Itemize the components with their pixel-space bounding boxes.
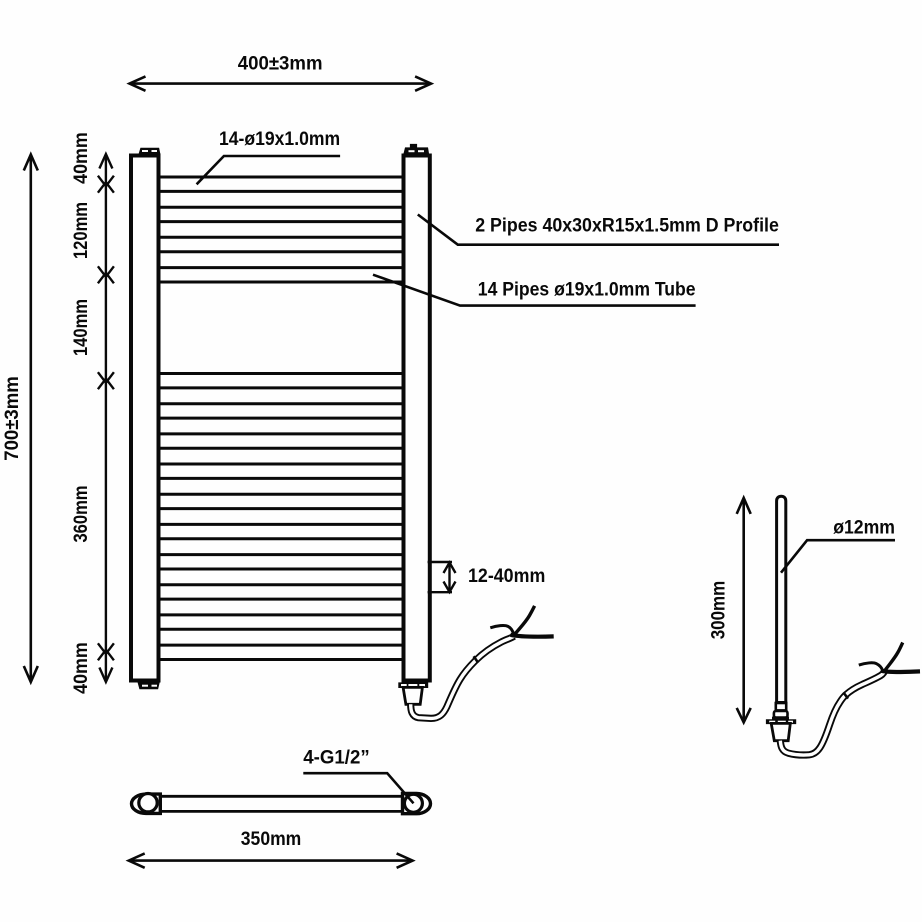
svg-text:120mm: 120mm — [70, 202, 92, 259]
svg-text:360mm: 360mm — [70, 485, 92, 542]
svg-text:2 Pipes 40x30xR15x1.5mm D Prof: 2 Pipes 40x30xR15x1.5mm D Profile — [475, 215, 779, 237]
svg-text:14 Pipes ø19x1.0mm Tube: 14 Pipes ø19x1.0mm Tube — [478, 279, 696, 301]
svg-text:40mm: 40mm — [70, 642, 92, 694]
svg-text:300mm: 300mm — [708, 581, 730, 640]
svg-text:40mm: 40mm — [70, 132, 92, 184]
svg-text:14-ø19x1.0mm: 14-ø19x1.0mm — [219, 128, 340, 150]
svg-text:4-G1/2”: 4-G1/2” — [303, 746, 369, 768]
svg-text:350mm: 350mm — [241, 828, 301, 850]
svg-text:ø12mm: ø12mm — [833, 517, 895, 539]
svg-text:12-40mm: 12-40mm — [468, 565, 545, 587]
svg-text:700±3mm: 700±3mm — [1, 376, 23, 461]
svg-text:400±3mm: 400±3mm — [238, 53, 323, 75]
svg-text:140mm: 140mm — [70, 299, 92, 356]
